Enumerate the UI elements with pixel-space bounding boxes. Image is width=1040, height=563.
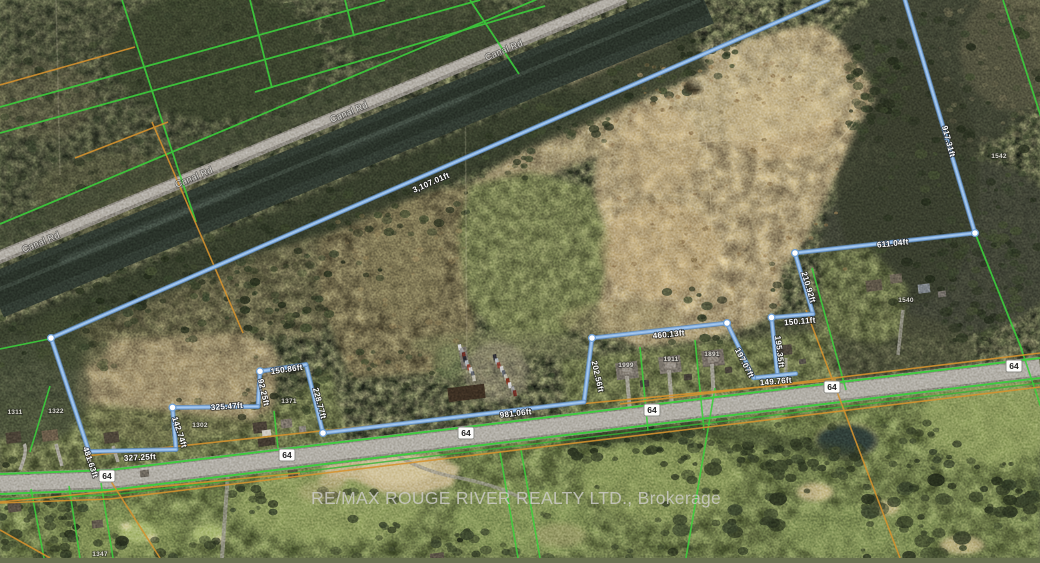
svg-text:64: 64 (282, 450, 292, 460)
svg-text:1322: 1322 (48, 408, 64, 415)
svg-text:1891: 1891 (704, 351, 720, 358)
svg-text:64: 64 (827, 382, 837, 392)
svg-text:327.25ft: 327.25ft (124, 452, 157, 463)
svg-text:64: 64 (461, 428, 471, 438)
svg-text:1542: 1542 (991, 153, 1007, 160)
svg-text:1911: 1911 (663, 356, 678, 363)
svg-text:64: 64 (1009, 361, 1019, 371)
svg-text:1371: 1371 (281, 398, 297, 405)
svg-text:1540: 1540 (898, 297, 914, 304)
svg-text:1302: 1302 (192, 422, 208, 429)
svg-text:RE/MAX ROUGE RIVER REALTY LTD.: RE/MAX ROUGE RIVER REALTY LTD., Brokerag… (311, 488, 721, 508)
svg-text:1999: 1999 (618, 362, 634, 369)
svg-text:64: 64 (102, 471, 112, 481)
svg-text:1347: 1347 (92, 551, 108, 558)
svg-text:64: 64 (647, 405, 657, 415)
svg-text:1311: 1311 (7, 409, 22, 416)
